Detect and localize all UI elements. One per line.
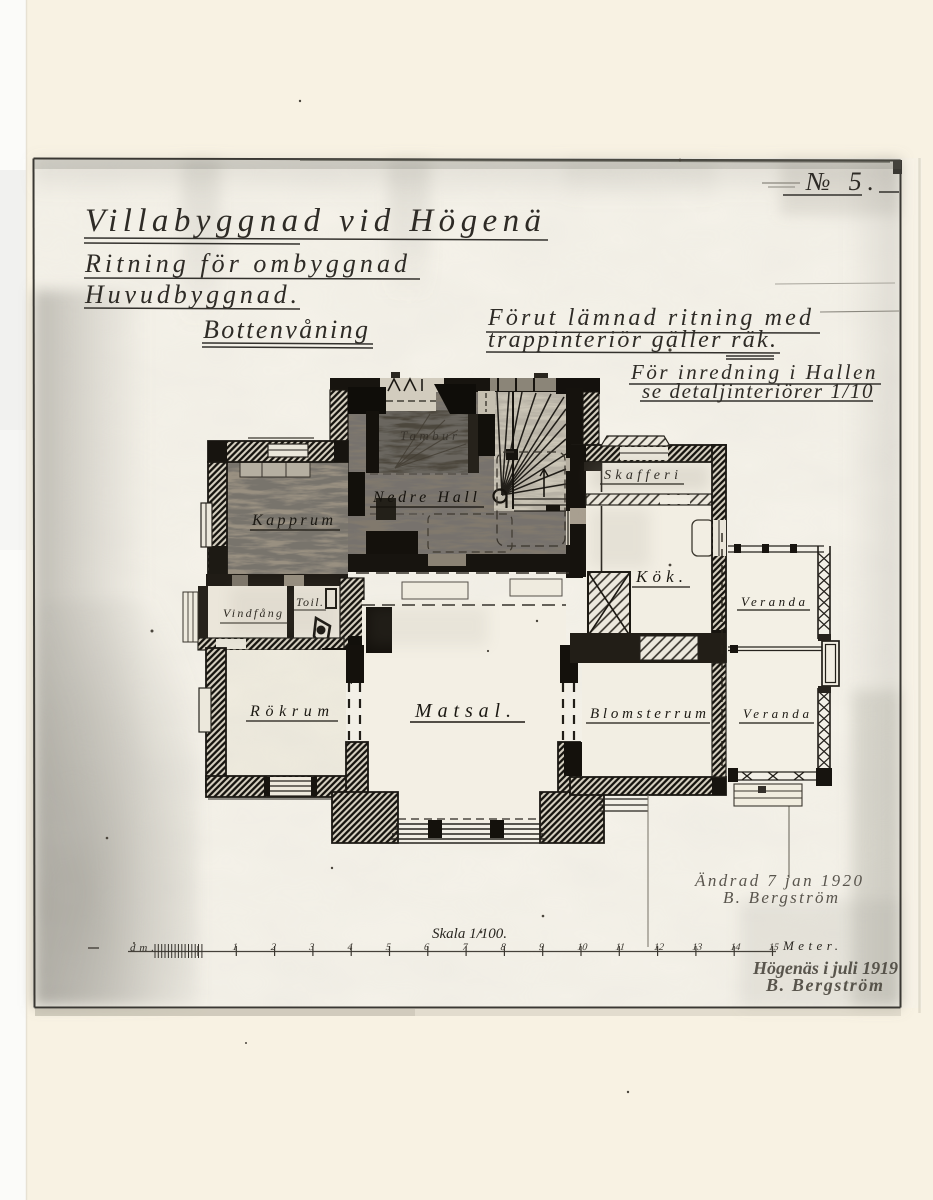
svg-text:Huvudbyggnad.: Huvudbyggnad.: [84, 280, 300, 309]
svg-text:trappinteriör gäller räk.: trappinteriör gäller räk.: [488, 327, 778, 353]
svg-text:Ritning för ombyggnad: Ritning för ombyggnad: [84, 249, 410, 278]
svg-text:B. Bergström: B. Bergström: [723, 888, 839, 907]
svg-text:se detaljinteriörer 1/10: se detaljinteriörer 1/10: [642, 379, 874, 403]
svg-text:Skala 1/100.: Skala 1/100.: [432, 926, 508, 942]
svg-text:3: 3: [308, 942, 315, 953]
svg-text:15: 15: [768, 942, 779, 953]
svg-text:Kök.: Kök.: [635, 567, 686, 586]
svg-text:Matsal.: Matsal.: [414, 700, 515, 722]
svg-text:11: 11: [615, 942, 625, 953]
svg-text:B. Bergström: B. Bergström: [765, 975, 884, 995]
svg-text:Tambur: Tambur: [400, 428, 458, 443]
svg-text:Villabyggnad vid Högenä: Villabyggnad vid Högenä: [85, 203, 545, 239]
svg-text:14: 14: [730, 942, 741, 953]
svg-text:10: 10: [577, 942, 588, 953]
svg-text:Blomsterrum: Blomsterrum: [590, 706, 708, 722]
svg-text:Meter.: Meter.: [782, 938, 839, 953]
svg-text:Bottenvåning: Bottenvåning: [203, 315, 371, 344]
svg-text:13: 13: [692, 942, 703, 953]
svg-text:12: 12: [653, 942, 664, 953]
svg-text:Kapprum: Kapprum: [251, 512, 336, 529]
svg-text:dm.: dm.: [130, 942, 154, 954]
